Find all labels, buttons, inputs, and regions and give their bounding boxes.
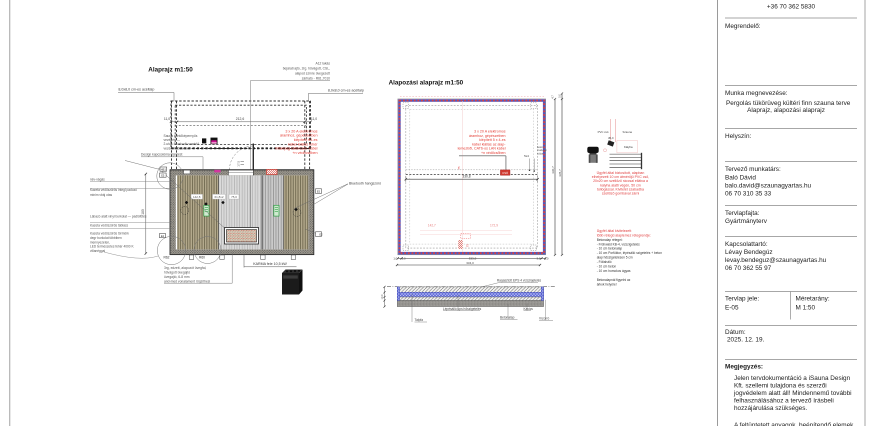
- svg-text:vezérlőkábelekkel: vezérlőkábelekkel: [164, 146, 190, 150]
- svg-text:- Frühwald KB-4, vízszigetelés: - Frühwald KB-4, vízszigetelés: [597, 242, 640, 246]
- svg-text:bejárati ajtó, 2rg. hővágott,: bejárati ajtó, 2rg. hővágott, CSL,: [283, 66, 330, 70]
- svg-text:üvegajtó, 6-8 mm: üvegajtó, 6-8 mm: [164, 275, 190, 279]
- svg-text:Alaprajz m1:50: Alaprajz m1:50: [148, 67, 193, 74]
- svg-text:E2: E2: [161, 234, 165, 238]
- svg-text:Gyártmányterv: Gyártmányterv: [725, 218, 768, 225]
- svg-text:Ø1,9: Ø1,9: [608, 137, 614, 140]
- svg-text:Helyszín:: Helyszín:: [725, 133, 752, 140]
- svg-text:10,0: 10,0: [381, 294, 384, 299]
- svg-text:+36 70 362 5830: +36 70 362 5830: [767, 3, 816, 10]
- svg-text:+n védőcsőben: +n védőcsőben: [481, 151, 505, 155]
- svg-text:Lábazó alatt vinyl burkolat —: Lábazó alatt vinyl burkolat — padlófűtés: [90, 214, 147, 218]
- svg-text:Kazeta védőszűrős törmörk: Kazeta védőszűrős törmörk: [90, 232, 129, 236]
- svg-text:felhasználásához a tervező írá: felhasználásához a tervező írásbeli: [734, 398, 834, 405]
- svg-text:Megrendelő:: Megrendelő:: [725, 23, 761, 30]
- svg-text:LED természetes fehér 4000 K: LED természetes fehér 4000 K: [90, 245, 134, 249]
- svg-text:142,8: 142,8: [193, 195, 201, 199]
- svg-text:- 10 cm beton: - 10 cm beton: [597, 265, 617, 269]
- svg-text:06 70 362 55 97: 06 70 362 55 97: [725, 265, 772, 272]
- svg-text:mennyezeten,: mennyezeten,: [90, 240, 110, 244]
- svg-text:2025. 12. 19.: 2025. 12. 19.: [727, 337, 765, 344]
- svg-text:Betonalap: Betonalap: [500, 316, 515, 320]
- svg-text:Vízorró: Vízorró: [539, 317, 550, 321]
- svg-text:több rétegű alaplemez rétegren: több rétegű alaplemez rétegrendje:: [597, 233, 651, 237]
- svg-text:17,5: 17,5: [236, 161, 240, 167]
- svg-text:335,8: 335,8: [469, 257, 477, 261]
- svg-text:335,7: 335,7: [558, 169, 562, 177]
- svg-text:zárható - R61,7010: zárható - R61,7010: [302, 77, 330, 81]
- svg-text:Kavics: Kavics: [524, 307, 534, 311]
- svg-text:HB1: HB1: [161, 167, 167, 171]
- svg-text:PVC cső: PVC cső: [598, 130, 609, 134]
- svg-text:2,0: 2,0: [402, 257, 406, 261]
- svg-text:minim vbáj otas: minim vbáj otas: [90, 193, 113, 197]
- svg-text:Jelen tervdokumentáció a iSaun: Jelen tervdokumentáció a iSauna Design: [734, 375, 851, 382]
- svg-text:3,0: 3,0: [537, 257, 541, 261]
- svg-text:villanéggal: villanéggal: [90, 249, 105, 253]
- svg-text:Kazeta védőszűrős integl padoz: Kazeta védőszűrős integl padozó: [90, 188, 137, 192]
- svg-text:E5: E5: [161, 173, 165, 177]
- svg-text:Talpfa: Talpfa: [415, 318, 424, 322]
- svg-text:M 1:50: M 1:50: [796, 305, 816, 312]
- svg-text:Méretarány:: Méretarány:: [796, 296, 830, 303]
- svg-text:balo.david@szaunagyartas.hu: balo.david@szaunagyartas.hu: [725, 183, 812, 190]
- svg-text:- 10 cm homokos ágyas: - 10 cm homokos ágyas: [597, 269, 631, 273]
- svg-text:06 70 310 35 33: 06 70 310 35 33: [725, 191, 772, 198]
- svg-text:E5: E5: [317, 189, 321, 193]
- svg-text:Alapozási alaprajz m1:50: Alapozási alaprajz m1:50: [389, 80, 464, 87]
- svg-text:Betonalapnál figyelni az: Betonalapnál figyelni az: [597, 278, 631, 282]
- svg-text:Design kapcsolóma kijelzést: Design kapcsolóma kijelzést: [141, 152, 182, 156]
- svg-text:1,0: 1,0: [393, 257, 397, 261]
- svg-text:4,7: 4,7: [552, 95, 555, 99]
- svg-text:8,0x8,0 cm-es acéltalp: 8,0x8,0 cm-es acéltalp: [328, 88, 364, 92]
- svg-text:3rg, edzett, alapozót üvegfal,: 3rg, edzett, alapozót üvegfal,: [164, 266, 206, 270]
- svg-text:jogvédelem alatt áll! Mindenne: jogvédelem alatt áll! Mindennemű további: [733, 390, 852, 397]
- svg-text:alap hőszigetelésen 5 cm: alap hőszigetelésen 5 cm: [597, 256, 633, 260]
- svg-text:Szauna: Szauna: [623, 130, 633, 134]
- svg-text:Kályha: Kályha: [624, 145, 633, 149]
- svg-text:330,7: 330,7: [551, 166, 555, 174]
- svg-text:and-med vonalament rögzíthesi: and-med vonalament rögzíthesi: [164, 279, 210, 283]
- svg-text:212,6: 212,6: [236, 117, 245, 121]
- svg-text:Lévay Bendegúz: Lévay Bendegúz: [725, 249, 773, 256]
- svg-text:Kapcsolattartó:: Kapcsolattartó:: [725, 241, 768, 248]
- svg-text:Munka megnevezése:: Munka megnevezése:: [725, 90, 788, 97]
- svg-text:Pergolás tükörüveg kültéri fin: Pergolás tükörüveg kültéri finn szauna t…: [726, 100, 851, 107]
- svg-text:Tervlap jele:: Tervlap jele:: [725, 296, 759, 303]
- svg-text:levay.bendeguz@szaunagyartas.h: levay.bendeguz@szaunagyartas.hu: [725, 257, 827, 264]
- svg-text:- 10 cm betonalap: - 10 cm betonalap: [597, 247, 623, 251]
- svg-text:+n védőcsőben: +n védőcsőben: [292, 151, 317, 155]
- svg-text:61,8x2: 61,8x2: [214, 195, 223, 199]
- svg-text:degr burkolat többiben: degr burkolat többiben: [90, 236, 122, 240]
- svg-text:Alaprajz, alapozási alaprajz: Alaprajz, alapozási alaprajz: [747, 107, 825, 114]
- svg-text:Megjegyzés:: Megjegyzés:: [725, 364, 763, 371]
- svg-text:Kft. szellemi tulajdona és sze: Kft. szellemi tulajdona és szerzői: [734, 383, 827, 390]
- svg-text:hővágott üvegajtó: hővágott üvegajtó: [164, 270, 190, 274]
- svg-text:Dátum:: Dátum:: [725, 329, 746, 336]
- svg-text:A feltüntetett anyagok, beépít: A feltüntetett anyagok, beépítendő eleme…: [734, 422, 854, 426]
- svg-text:75,0: 75,0: [231, 195, 237, 199]
- svg-text:75: 75: [466, 244, 470, 248]
- svg-text:330,8: 330,8: [462, 175, 470, 179]
- svg-text:árkok helyére!: árkok helyére!: [597, 282, 617, 286]
- svg-text:Bluetooth hangszóró: Bluetooth hangszóró: [349, 182, 381, 186]
- svg-text:142,7: 142,7: [428, 223, 436, 227]
- svg-text:KARMA fele 10,5 kW: KARMA fele 10,5 kW: [253, 262, 287, 266]
- svg-text:334,0: 334,0: [466, 261, 474, 265]
- svg-text:R60: R60: [199, 255, 205, 259]
- svg-text:Lépésálló ups hőszigetelés: Lépésálló ups hőszigetelés: [443, 307, 482, 311]
- svg-text:Tervlapfajta:: Tervlapfajta:: [725, 210, 760, 217]
- svg-text:hozzájárulása szükséges.: hozzájárulása szükséges.: [734, 405, 807, 412]
- svg-text:- 10 cm Porfüktor, lépésálló s: - 10 cm Porfüktor, lépésálló szigetelés …: [597, 251, 663, 255]
- svg-text:Ragasztott EPS 4 vízszigetelés: Ragasztott EPS 4 vízszigetelés: [497, 279, 542, 283]
- svg-text:alapod színre üvegezett: alapod színre üvegezett: [295, 72, 330, 76]
- svg-text:8,0x8,0 cm-es acéltalp: 8,0x8,0 cm-es acéltalp: [118, 87, 154, 91]
- svg-text:- Fóliaháló: - Fóliaháló: [597, 260, 612, 264]
- svg-text:Betonalap rétegei:: Betonalap rétegei:: [597, 238, 623, 242]
- svg-text:75: 75: [457, 166, 461, 170]
- svg-text:szellőző gombával zárni: szellőző gombával zárni: [602, 192, 640, 196]
- svg-text:1,0: 1,0: [545, 257, 549, 261]
- svg-text:E-05: E-05: [725, 305, 739, 312]
- svg-text:Kazeta védőszűrős táblács: Kazeta védőszűrős táblács: [90, 224, 129, 228]
- svg-text:súlya: súlya: [537, 151, 544, 155]
- svg-text:11,0: 11,0: [311, 117, 317, 121]
- svg-text:Baló Dávid: Baló Dávid: [725, 175, 756, 182]
- svg-text:172,9: 172,9: [490, 223, 498, 227]
- svg-text:E2: E2: [319, 232, 323, 236]
- svg-text:11,0: 11,0: [164, 117, 170, 121]
- svg-text:név-vágás: név-vágás: [90, 178, 105, 182]
- svg-text:5x4: 5x4: [524, 154, 529, 158]
- svg-text:Tervező munkatárs:: Tervező munkatárs:: [725, 166, 781, 173]
- svg-text:A12 lakás: A12 lakás: [316, 61, 331, 65]
- svg-text:R62: R62: [163, 255, 169, 259]
